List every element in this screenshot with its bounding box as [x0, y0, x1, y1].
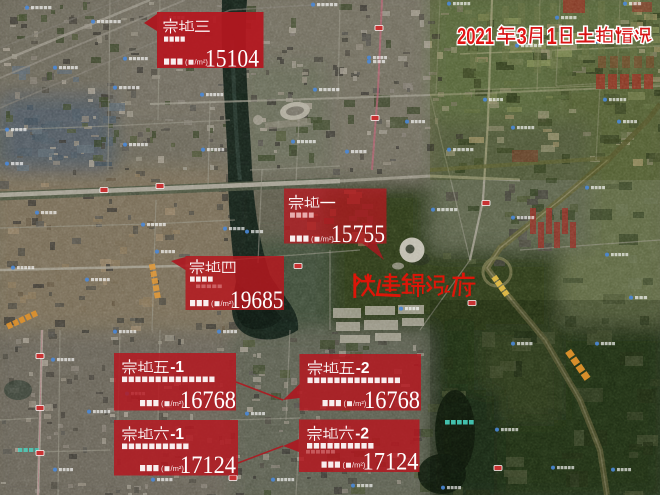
svg-text:2021: 2021	[457, 23, 494, 49]
svg-text:19685: 19685	[230, 287, 284, 314]
svg-text:-2: -2	[356, 360, 370, 377]
svg-text:3: 3	[517, 23, 527, 49]
svg-text:-1: -1	[170, 426, 184, 443]
svg-text:1: 1	[547, 23, 557, 49]
svg-text:17124: 17124	[180, 452, 236, 479]
svg-text:16768: 16768	[180, 387, 236, 414]
svg-text:17124: 17124	[363, 449, 419, 476]
svg-text:15104: 15104	[205, 46, 259, 73]
svg-text:-2: -2	[355, 426, 369, 443]
svg-text:15755: 15755	[331, 221, 385, 248]
svg-text:-1: -1	[170, 359, 184, 376]
svg-text:16768: 16768	[364, 387, 420, 414]
